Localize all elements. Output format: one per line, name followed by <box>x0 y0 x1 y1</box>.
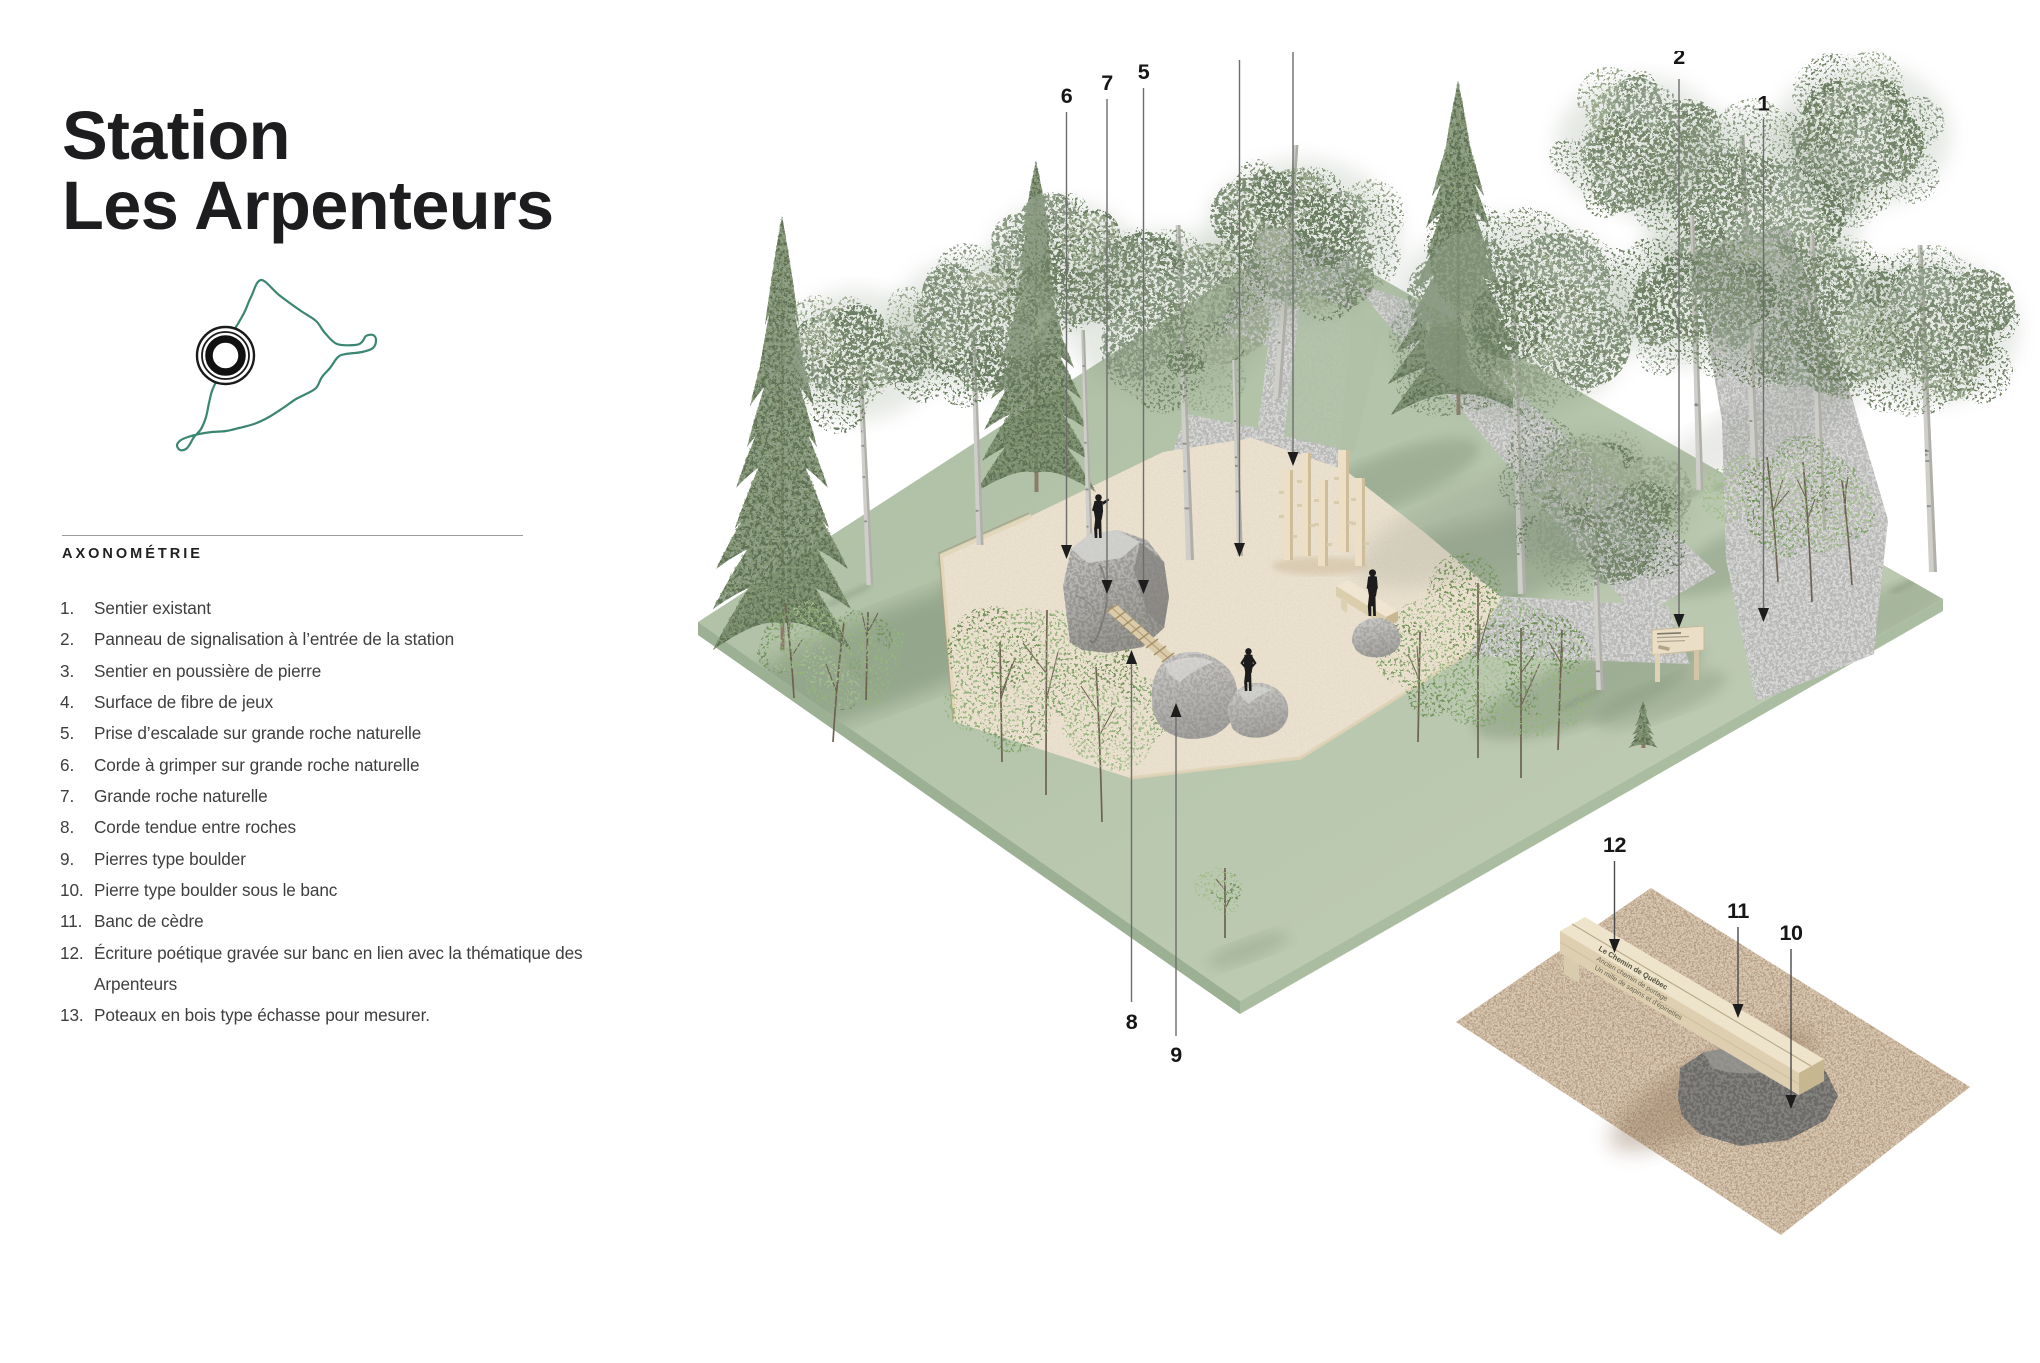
svg-text:1: 1 <box>1758 92 1770 116</box>
svg-text:9: 9 <box>1170 1043 1182 1067</box>
svg-text:10: 10 <box>1780 921 1803 945</box>
svg-text:8: 8 <box>1126 1010 1138 1034</box>
svg-text:6: 6 <box>1061 84 1073 108</box>
svg-text:5: 5 <box>1138 60 1150 84</box>
svg-text:7: 7 <box>1101 71 1113 95</box>
svg-text:12: 12 <box>1603 833 1626 857</box>
svg-text:11: 11 <box>1727 899 1749 923</box>
